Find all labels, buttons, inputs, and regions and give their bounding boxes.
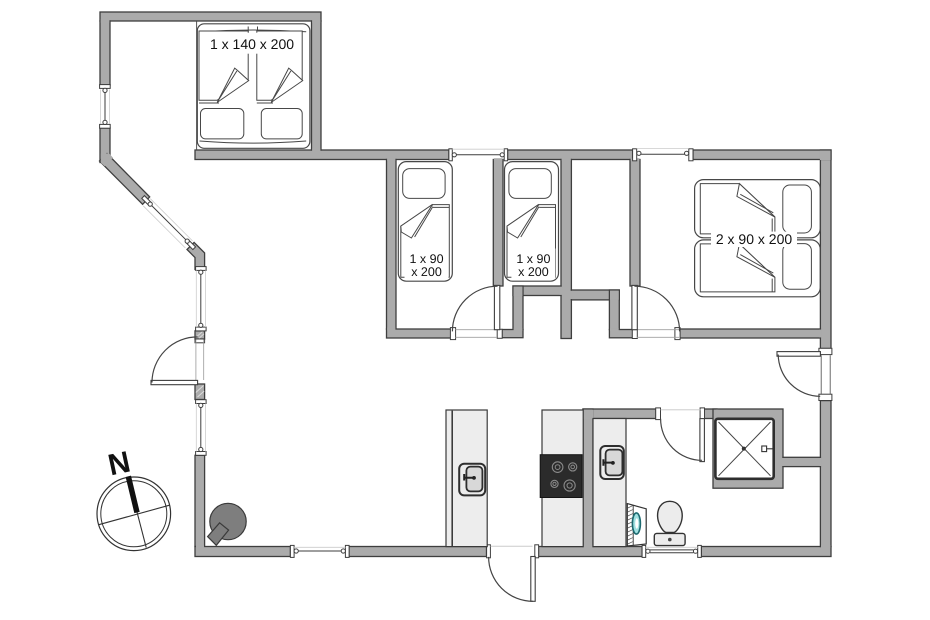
svg-text:2 x 90 x 200: 2 x 90 x 200 [716, 231, 792, 247]
svg-text:1 x 140 x 200: 1 x 140 x 200 [210, 36, 294, 52]
svg-text:x 200: x 200 [411, 265, 442, 279]
svg-text:x 200: x 200 [518, 265, 549, 279]
